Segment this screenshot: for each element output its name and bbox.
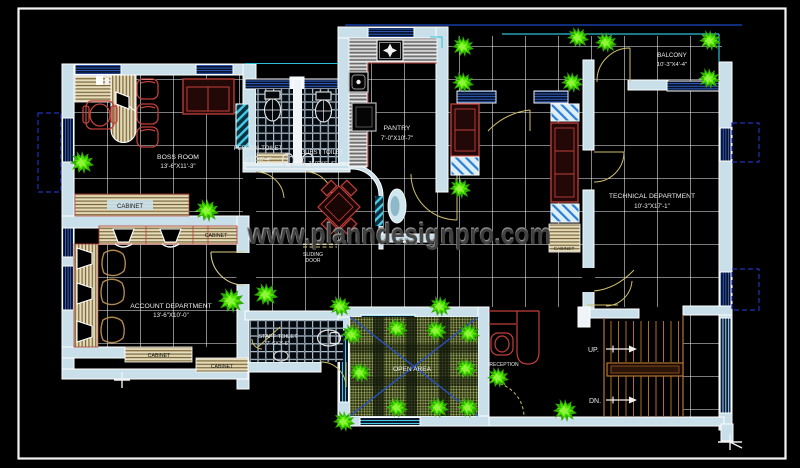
svg-text:7'-6X3'-6": 7'-6X3'-6" bbox=[266, 341, 289, 347]
svg-text:10'-3"X4'-4": 10'-3"X4'-4" bbox=[657, 62, 687, 68]
svg-text:3'-0"X6'-4": 3'-0"X6'-4" bbox=[309, 161, 336, 167]
svg-text:www.planndesignpro.com: www.planndesignpro.com bbox=[247, 219, 551, 251]
svg-text:BOSS ROOM: BOSS ROOM bbox=[157, 154, 199, 161]
svg-text:CABINET: CABINET bbox=[117, 204, 143, 210]
svg-text:ACCOUNT DEPARTMENT: ACCOUNT DEPARTMENT bbox=[130, 303, 212, 310]
svg-text:CABINET: CABINET bbox=[211, 364, 234, 370]
svg-text:DN.: DN. bbox=[589, 398, 601, 405]
svg-text:STAFF TOILET: STAFF TOILET bbox=[258, 334, 298, 340]
svg-text:CABINET: CABINET bbox=[554, 246, 575, 252]
svg-text:DOOR: DOOR bbox=[306, 258, 321, 264]
svg-text:CABINET: CABINET bbox=[148, 353, 171, 359]
svg-text:OPEN AREA: OPEN AREA bbox=[393, 366, 432, 373]
svg-text:7'-0"X10'-7": 7'-0"X10'-7" bbox=[381, 135, 413, 142]
svg-text:CABINET: CABINET bbox=[205, 233, 228, 239]
svg-text:PERSON-TOILET: PERSON-TOILET bbox=[234, 146, 283, 152]
svg-text:PANTRY: PANTRY bbox=[384, 125, 411, 132]
svg-text:UP.: UP. bbox=[588, 347, 599, 354]
svg-text:BALCONY: BALCONY bbox=[657, 52, 687, 59]
svg-text:3'-0"X6'-4": 3'-0"X6'-4" bbox=[245, 157, 272, 163]
svg-text:13'-6"X10'-0": 13'-6"X10'-0" bbox=[153, 312, 189, 319]
svg-text:GUEST TOILET: GUEST TOILET bbox=[300, 150, 343, 156]
svg-text:13'-6"X11'-3": 13'-6"X11'-3" bbox=[160, 163, 195, 170]
svg-text:RECEPTION: RECEPTION bbox=[489, 362, 519, 368]
svg-text:10'-3"X17'-1": 10'-3"X17'-1" bbox=[634, 203, 670, 210]
svg-text:TECHNICAL DEPARTMENT: TECHNICAL DEPARTMENT bbox=[609, 193, 695, 200]
